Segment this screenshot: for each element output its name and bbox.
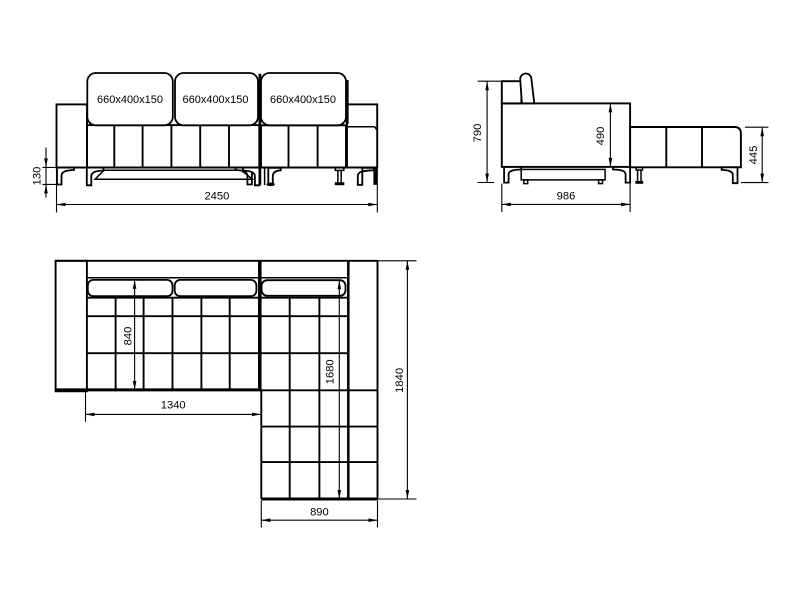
svg-text:1680: 1680 (325, 359, 337, 384)
svg-text:660x400x150: 660x400x150 (182, 94, 248, 106)
svg-text:660x400x150: 660x400x150 (97, 94, 163, 106)
svg-text:445: 445 (748, 146, 760, 165)
svg-text:790: 790 (472, 124, 484, 143)
svg-text:890: 890 (310, 506, 329, 518)
svg-text:1340: 1340 (161, 400, 186, 412)
svg-text:2450: 2450 (204, 190, 229, 202)
svg-text:840: 840 (123, 327, 135, 346)
svg-text:490: 490 (595, 127, 607, 146)
svg-text:130: 130 (32, 167, 44, 186)
svg-text:660x400x150: 660x400x150 (270, 94, 336, 106)
svg-text:1840: 1840 (394, 368, 406, 393)
svg-text:986: 986 (557, 191, 576, 203)
